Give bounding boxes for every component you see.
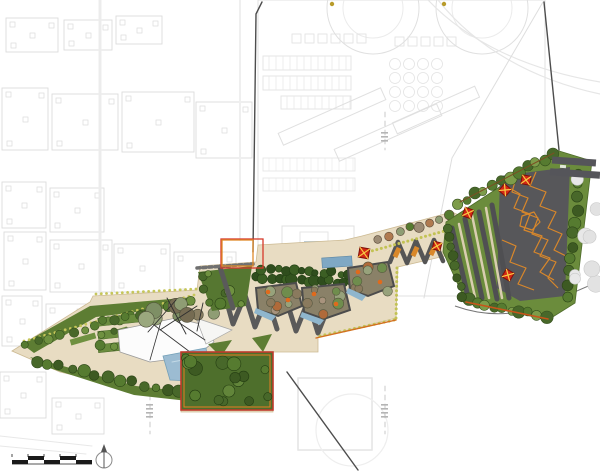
residential-block-outlines-unit — [54, 244, 59, 249]
residential-block-outlines-unit — [39, 93, 44, 98]
residential-block-outlines-unit — [7, 141, 12, 146]
hedge-dot-border-dot-icon — [395, 280, 398, 283]
hedge-dot-border-dot-icon — [428, 234, 431, 237]
residential-block-outlines-unit — [57, 141, 62, 146]
residential-block-outlines-unit — [4, 376, 9, 381]
boundary-line-east — [544, 2, 559, 150]
hedge-dot-border-dot-icon — [420, 236, 423, 239]
residential-block-outlines-unit — [10, 22, 15, 27]
hedge-dot-border-dot-icon — [189, 288, 192, 291]
tree-row-east-top-tree-icon — [452, 199, 462, 209]
residential-block-outlines-unit — [11, 43, 16, 48]
residential-block-outlines-unit — [86, 33, 91, 38]
residential-block-outlines-unit — [156, 120, 161, 125]
connector-trees-tree-icon — [396, 228, 404, 236]
tree-row-wedge-bottom-tree-icon — [152, 384, 160, 392]
residential-block-outlines-unit — [118, 248, 123, 253]
hedge-tree-row-tree-icon — [257, 274, 267, 284]
existing-gray-trees-tree-icon — [583, 230, 596, 243]
hedge-dot-border-dot-icon — [64, 328, 67, 331]
south-block-trees-tree-icon — [227, 357, 241, 371]
hedge-dot-border-dot-icon — [195, 288, 198, 291]
hedge-dot-border-dot-icon — [395, 285, 398, 288]
residential-block-outlines-unit — [9, 281, 14, 286]
residential-block-outlines-unit — [6, 92, 11, 97]
rail-line — [0, 436, 92, 446]
tree-row-east-left-tree-icon — [443, 224, 452, 233]
campus-circle-grid — [418, 73, 429, 84]
residential-block-outlines-unit — [161, 249, 166, 254]
campus-circle-grid — [404, 101, 415, 112]
hedge-dot-border-dot-icon — [433, 232, 436, 235]
orange-callout-box — [222, 240, 253, 266]
orange-accent — [286, 298, 291, 303]
hedge-dot-border-dot-icon — [147, 290, 150, 293]
residential-block-outlines-unit — [153, 21, 158, 26]
survey-tick-stack — [146, 416, 153, 418]
south-block-trees-tree-icon — [261, 366, 269, 374]
hedge-dot-border-dot-icon — [424, 235, 427, 238]
scale-bar-segment — [76, 460, 92, 464]
site-plan-canvas — [0, 0, 600, 471]
red-shade-sculpture — [521, 175, 531, 185]
hedge-dot-border-dot-icon — [406, 240, 409, 243]
residential-block-outlines-unit — [22, 203, 27, 208]
parking-trees-tree-icon — [110, 315, 120, 325]
residential-block-outlines-unit — [83, 120, 88, 125]
orange-accent — [334, 302, 339, 307]
hedge-tree-row-tree-icon — [289, 265, 299, 275]
residential-block-outlines-unit — [21, 393, 26, 398]
connector-trees-tree-icon — [414, 222, 424, 232]
north-arrow — [96, 444, 112, 468]
residential-block-outlines-unit — [227, 257, 232, 262]
parking-trees-tree-icon — [121, 313, 129, 321]
hedge-dot-border-dot-icon — [163, 289, 166, 292]
parking-trees-tree-icon — [95, 340, 105, 350]
hedge-dot-border-dot-icon — [375, 248, 378, 251]
residential-block-outlines-unit — [75, 208, 80, 213]
campus-circle-grid — [404, 87, 415, 98]
residential-block-outlines — [114, 244, 170, 292]
residential-block-outlines-unit — [127, 143, 132, 148]
residential-block-outlines-unit — [222, 128, 227, 133]
residential-block-outlines — [122, 92, 194, 152]
sketch-tree-cluster-tree-icon — [180, 307, 195, 322]
orange-accent — [356, 270, 361, 275]
scale-bar-segment — [28, 456, 44, 460]
tree-row-wedge-top-tree-icon — [44, 335, 53, 344]
residential-block-outlines-unit — [6, 300, 11, 305]
campus-square-row — [344, 34, 353, 43]
hedge-dot-border-dot-icon — [371, 249, 374, 252]
connector-trees-tree-icon — [426, 219, 434, 227]
tree-row-east-right-tree-icon — [567, 227, 578, 238]
tree-row-wedge-top-tree-icon — [35, 337, 43, 345]
hedge-dot-border-dot-icon — [137, 291, 140, 294]
residential-block-outlines — [2, 182, 46, 228]
tree-row-east-left-tree-icon — [457, 283, 465, 291]
south-block-trees-tree-icon — [214, 395, 223, 404]
campus-round-building — [452, 0, 512, 38]
south-road-circle — [316, 394, 388, 466]
residential-block-outlines-unit — [95, 403, 100, 408]
planter-trees-tree-icon — [267, 298, 276, 307]
hedge-dot-border-dot-icon — [110, 292, 113, 295]
campus-circle-grid — [418, 59, 429, 70]
hedge-dot-border-dot-icon — [402, 241, 405, 244]
residential-block-outlines-unit — [103, 245, 108, 250]
campus-circle-grid — [390, 101, 401, 112]
residential-block-outlines-unit — [201, 149, 206, 154]
parking-trees-tree-icon — [99, 316, 107, 324]
survey-tick-stack — [381, 412, 388, 414]
residential-block-outlines-unit — [120, 20, 125, 25]
hedge-dot-border-dot-icon — [395, 298, 398, 301]
tree-row-wedge-bottom-tree-icon — [102, 371, 114, 383]
tree-row-east-left-tree-icon — [457, 292, 467, 302]
plaza-north-trees-tree-icon — [238, 301, 244, 307]
tree-row-wedge-top-tree-icon — [55, 330, 64, 339]
residential-block-outlines-unit — [23, 259, 28, 264]
residential-block-outlines-unit — [37, 237, 42, 242]
hedge-dot-border-dot-icon — [395, 303, 398, 306]
legend — [12, 444, 112, 468]
hedge-dot-border-dot-icon — [395, 289, 398, 292]
campus-circle-grid — [390, 73, 401, 84]
existing-gray-trees-tree-icon — [587, 276, 600, 293]
residential-block-outlines-unit — [76, 414, 81, 419]
tree-row-east-left-tree-icon — [447, 243, 455, 251]
hedge-dot-border-dot-icon — [397, 242, 400, 245]
survey-tick-stack — [146, 404, 153, 406]
residential-block-outlines-unit — [137, 28, 142, 33]
sketch-tree-cluster-tree-icon — [138, 311, 154, 327]
hedge-dot-border-dot-icon — [184, 288, 187, 291]
graphic-scale-bar — [12, 454, 92, 464]
tree-row-east-right-tree-icon — [563, 292, 573, 302]
hedge-dot-border-dot-icon — [105, 292, 108, 295]
gate-marker — [330, 2, 334, 6]
residential-block-outlines-unit — [30, 33, 35, 38]
residential-block-outlines-unit — [33, 301, 38, 306]
hedge-dot-border-dot-icon — [395, 312, 398, 315]
parking-row — [263, 178, 355, 191]
survey-tick-stack — [146, 408, 153, 410]
hedge-dot-border-dot-icon — [193, 294, 196, 297]
residential-block-outlines-unit — [103, 25, 108, 30]
planter-trees-tree-icon — [363, 266, 372, 275]
campus-square-row — [292, 34, 301, 43]
residential-block-outlines-unit — [55, 283, 60, 288]
hedge-dot-border-dot-icon — [384, 246, 387, 249]
planter-trees-tree-icon — [319, 310, 328, 319]
south-block-trees-tree-icon — [245, 397, 254, 406]
hedge-dot-border-dot-icon — [28, 338, 31, 341]
survey-tick-stack — [146, 412, 153, 414]
residential-block-outlines-unit — [7, 219, 12, 224]
hedge-dot-border-dot-icon — [393, 243, 396, 246]
residential-block-outlines-unit — [50, 308, 55, 313]
connector-trees-tree-icon — [406, 223, 414, 231]
campus-round-building — [343, 0, 403, 38]
hedge-dot-border-dot-icon — [389, 244, 392, 247]
connector-trees-tree-icon — [374, 236, 382, 244]
hedge-dot-border-dot-icon — [100, 292, 103, 295]
residential-block-outlines-unit — [49, 23, 54, 28]
residential-block-outlines-unit — [55, 223, 60, 228]
planter-trees-tree-icon — [353, 277, 362, 286]
residential-block-outlines — [50, 188, 104, 232]
residential-block-outlines-unit — [54, 192, 59, 197]
hedge-dot-border-dot-icon — [95, 293, 98, 296]
south-block-trees-tree-icon — [190, 390, 201, 401]
hedge-dot-border-dot-icon — [395, 271, 398, 274]
tree-row-wedge-top-tree-icon — [82, 327, 89, 334]
residential-block-outlines — [196, 102, 252, 158]
reflecting-pool — [322, 256, 353, 268]
campus-square-row — [421, 37, 430, 46]
survey-tick-stack — [381, 140, 388, 142]
hedge-dot-border-dot-icon — [121, 291, 124, 294]
hedge-dot-border-dot-icon — [395, 294, 398, 297]
tree-row-wedge-bottom-tree-icon — [114, 375, 126, 387]
hedge-dot-border-dot-icon — [79, 324, 82, 327]
residential-block-outlines-unit — [20, 319, 25, 324]
red-pavilion — [358, 247, 370, 259]
campus-circle-grid — [432, 59, 443, 70]
scale-bar-segment — [44, 460, 60, 464]
hedge-tree-row-tree-icon — [256, 265, 266, 275]
planter-trees-tree-icon — [292, 289, 302, 299]
hedge-dot-border-dot-icon — [168, 289, 171, 292]
tree-row-wedge-bottom-tree-icon — [89, 371, 99, 381]
campus-circle-grid — [404, 73, 415, 84]
hedge-dot-border-dot-icon — [174, 289, 177, 292]
residential-block-outlines-unit — [6, 186, 11, 191]
tree-row-wedge-bottom-tree-icon — [69, 365, 77, 373]
residential-block-outlines-unit — [37, 377, 42, 382]
hedge-dot-border-dot-icon — [395, 317, 398, 320]
campus-circle-grid — [390, 59, 401, 70]
parking-trees-tree-icon — [111, 328, 118, 335]
campus-circle-grid — [390, 87, 401, 98]
existing-gray-trees-tree-icon — [590, 203, 600, 216]
residential-block-outlines-unit — [8, 236, 13, 241]
hedge-dot-border-dot-icon — [396, 267, 399, 270]
south-block-trees-tree-icon — [230, 372, 241, 383]
hedge-dot-border-dot-icon — [380, 247, 383, 250]
residential-block-outlines-unit — [200, 106, 205, 111]
campus-circle-grid — [418, 87, 429, 98]
residential-block-outlines-unit — [56, 98, 61, 103]
tree-row-wedge-top-tree-icon — [21, 341, 28, 348]
residential-block-outlines-unit — [56, 402, 61, 407]
gate-marker — [442, 2, 446, 6]
campus-square-row — [408, 37, 417, 46]
tree-row-east-left-tree-icon — [448, 251, 458, 261]
planter-trees-tree-icon — [332, 288, 340, 296]
south-block-trees-tree-icon — [184, 356, 196, 368]
tree-row-east-bottom-tree-icon — [497, 303, 507, 313]
hedge-dot-border-dot-icon — [158, 289, 161, 292]
tree-row-east-top-tree-icon — [530, 158, 539, 167]
tree-row-wedge-bottom-tree-icon — [127, 376, 137, 386]
campus-round-building — [327, 0, 419, 54]
planter-trees-tree-icon — [303, 298, 313, 308]
hedge-dot-border-dot-icon — [116, 292, 119, 295]
planter-trees-tree-icon — [319, 297, 326, 304]
residential-block-outlines-unit — [109, 99, 114, 104]
north-road-curve — [438, 0, 600, 94]
campus-square-row — [395, 37, 404, 46]
plaza-north-trees-tree-icon — [199, 285, 207, 293]
plaza-north-trees-tree-icon — [206, 299, 213, 306]
rail-line — [0, 446, 86, 454]
connector-trees-tree-icon — [435, 216, 442, 223]
survey-tick-stack — [381, 132, 388, 134]
residential-block-outlines-unit — [79, 264, 84, 269]
hedge-dot-border-dot-icon — [153, 290, 156, 293]
existing-gray-trees-tree-icon — [584, 261, 600, 277]
orange-accent — [266, 290, 271, 295]
north-arrowhead-icon — [101, 444, 107, 452]
tree-row-wedge-top-tree-icon — [90, 321, 99, 330]
tree-row-east-left-tree-icon — [445, 232, 454, 241]
hedge-tree-row-tree-icon — [266, 264, 275, 273]
residential-block-outlines-unit — [126, 96, 131, 101]
hedge-dot-border-dot-icon — [395, 307, 398, 310]
residential-block-outlines-unit — [185, 97, 190, 102]
plaza-north-trees-tree-icon — [215, 298, 226, 309]
tree-row-wedge-bottom-tree-icon — [140, 382, 150, 392]
south-block-trees-tree-icon — [223, 385, 235, 397]
scale-bar-segment — [12, 460, 28, 464]
tree-row-wedge-bottom-tree-icon — [32, 356, 44, 368]
park-west — [12, 212, 470, 412]
hedge-tree-row-tree-icon — [298, 267, 305, 274]
red-shade-sculpture — [432, 241, 442, 251]
existing-gray-trees-tree-icon — [570, 273, 581, 284]
parking-row — [281, 96, 351, 109]
campus-circle-grid — [432, 73, 443, 84]
planter-trees-tree-icon — [383, 287, 393, 297]
campus-circle-grid — [432, 87, 443, 98]
tree-row-wedge-bottom-tree-icon — [42, 360, 52, 370]
residential-block-outlines-unit — [140, 266, 145, 271]
pergola-gap — [560, 165, 566, 168]
hedge-dot-border-dot-icon — [126, 291, 129, 294]
south-block-trees-tree-icon — [264, 393, 272, 401]
hedge-dot-border-dot-icon — [395, 276, 398, 279]
parking-trees-tree-icon — [98, 331, 105, 338]
orange-accent — [312, 292, 317, 297]
residential-block-outlines — [64, 20, 112, 50]
campus-square-row — [305, 34, 314, 43]
tree-row-east-right-tree-icon — [572, 205, 583, 216]
hedge-dot-border-dot-icon — [437, 231, 440, 234]
hedge-dot-border-dot-icon — [415, 237, 418, 240]
hedge-dot-border-dot-icon — [142, 290, 145, 293]
site-plan-svg — [0, 0, 600, 471]
residential-block-outlines-unit — [23, 117, 28, 122]
tree-row-wedge-bottom-tree-icon — [54, 360, 64, 370]
planter-trees-tree-icon — [282, 287, 293, 298]
hedge-dot-border-dot-icon — [179, 288, 182, 291]
hedge-dot-border-dot-icon — [411, 238, 414, 241]
tree-row-wedge-top-tree-icon — [69, 328, 78, 337]
campus-circle-grid — [404, 59, 415, 70]
plaza-north-trees-tree-icon — [205, 271, 211, 277]
residential-block-outlines-unit — [57, 425, 62, 430]
tree-row-east-left-tree-icon — [453, 274, 461, 282]
hedge-tree-row-tree-icon — [312, 270, 318, 276]
tree-row-wedge-bottom-tree-icon — [163, 384, 174, 395]
residential-block-outlines-unit — [121, 35, 126, 40]
campus-square-row — [318, 34, 327, 43]
residential-block-outlines-unit — [7, 337, 12, 342]
planter-trees-tree-icon — [377, 263, 387, 273]
parking-trees-tree-icon — [110, 343, 117, 350]
connector-trees-tree-icon — [385, 232, 394, 241]
tree-row-east-top-tree-icon — [463, 197, 471, 205]
tree-row-east-right-tree-icon — [568, 243, 578, 253]
tree-row-east-right-tree-icon — [572, 191, 583, 202]
park-right — [432, 148, 600, 324]
residential-block-outlines-unit — [243, 107, 248, 112]
hedge-dot-border-dot-icon — [131, 291, 134, 294]
residential-block-outlines-unit — [68, 24, 73, 29]
residential-block-outlines-unit — [119, 283, 124, 288]
residential-block-outlines-unit — [5, 409, 10, 414]
orange-accent — [378, 280, 383, 285]
campus-square-row — [434, 37, 443, 46]
hedge-dot-border-dot-icon — [84, 323, 87, 326]
tree-row-east-left-tree-icon — [450, 261, 459, 270]
residential-block-outlines — [52, 398, 104, 434]
scale-bar-segment — [60, 456, 76, 460]
residential-block-outlines-unit — [178, 256, 183, 261]
survey-tick-stack — [381, 408, 388, 410]
survey-tick-stack — [381, 416, 388, 418]
residential-block-outlines-unit — [37, 187, 42, 192]
survey-tick-stack — [381, 404, 388, 406]
tree-row-wedge-bottom-tree-icon — [78, 364, 91, 377]
survey-tick-stack — [381, 136, 388, 138]
tree-row-east-right-tree-icon — [565, 253, 576, 264]
residential-block-outlines-unit — [69, 41, 74, 46]
residential-block-outlines — [0, 372, 46, 418]
